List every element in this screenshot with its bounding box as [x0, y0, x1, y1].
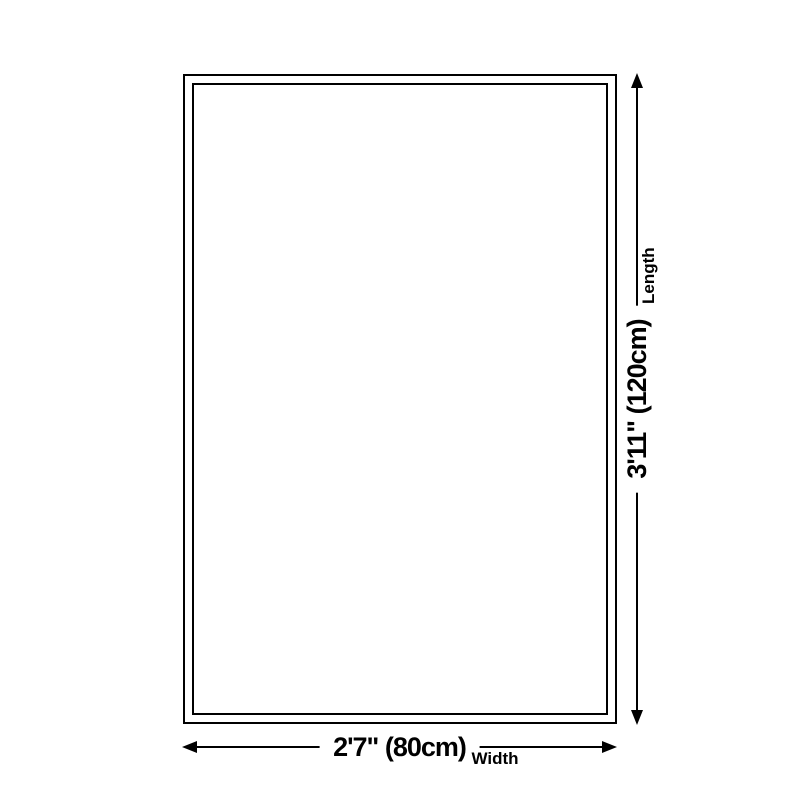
width-axis-label: Width — [472, 750, 519, 769]
arrow-right-icon — [602, 741, 617, 753]
arrow-left-icon — [182, 741, 197, 753]
length-axis-label: Length — [640, 247, 659, 304]
size-diagram: 3'11" (120cm) Length 2'7" (80cm) Width — [0, 0, 800, 800]
arrow-down-icon — [631, 710, 643, 725]
arrow-up-icon — [631, 73, 643, 88]
width-value: 2'7" (80cm) — [319, 731, 480, 763]
length-dimension-arrow: 3'11" (120cm) Length — [616, 73, 660, 725]
product-outline-rect — [183, 74, 617, 724]
length-value: 3'11" (120cm) — [621, 305, 653, 492]
width-dimension-arrow: 2'7" (80cm) Width — [182, 726, 617, 770]
product-inner-border — [192, 83, 608, 715]
